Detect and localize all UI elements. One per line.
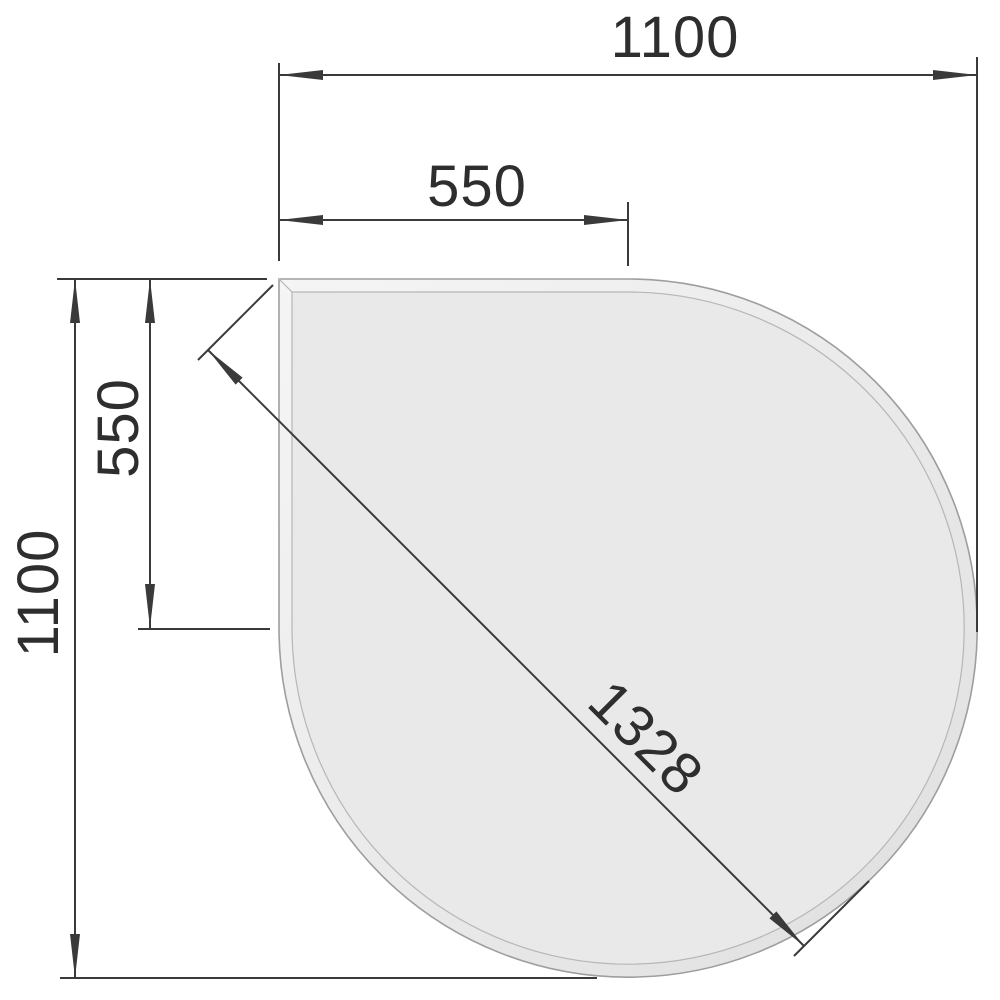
dim-label-top-width: 1100 xyxy=(611,5,740,70)
arrow-top-width-right xyxy=(933,70,977,80)
arrow-top-half-width-left xyxy=(279,215,323,225)
arrow-left-half-height-top xyxy=(145,279,155,323)
arrow-diagonal-near xyxy=(208,350,243,385)
arrow-left-height-bottom xyxy=(70,934,80,978)
plate-top-face xyxy=(292,292,964,964)
drawing-canvas: 1100 550 550 1100 1328 xyxy=(0,0,1000,1000)
arrow-left-height-top xyxy=(70,279,80,323)
dim-label-left-half-height: 550 xyxy=(86,378,151,478)
arrow-top-half-width-right xyxy=(584,215,628,225)
arrow-top-width-left xyxy=(279,70,323,80)
dimension-drawing-svg: 1100 550 550 1100 1328 xyxy=(0,0,1000,1000)
arrow-left-half-height-bottom xyxy=(145,584,155,628)
teardrop-plate xyxy=(279,279,977,977)
dim-label-top-half-width: 550 xyxy=(427,154,527,219)
dim-label-left-height: 1100 xyxy=(6,529,71,658)
ext-line-diagonal-near xyxy=(198,285,273,360)
